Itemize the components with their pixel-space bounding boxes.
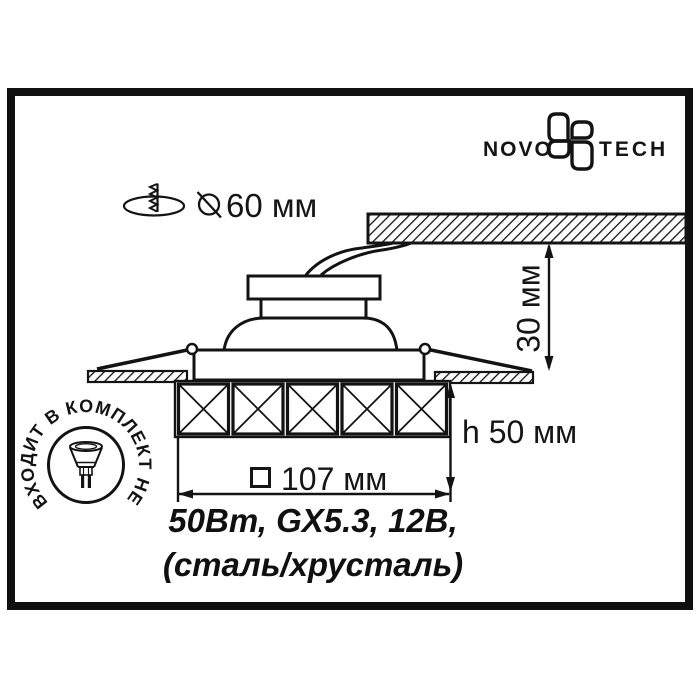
stamp-inner-circle [49,428,124,503]
square-symbol [250,467,271,488]
fixture-top-cap [248,276,380,299]
stamp-circular-text: ВХОДИТ В КОМПЛЕКТ НЕ [17,396,155,513]
fixture-neck [261,299,366,318]
cutout-diameter-label: 60 мм [226,187,317,225]
novotech-flower-icon [549,114,592,169]
screw-left [187,344,197,354]
halogen-lamp-icon [70,442,102,488]
height-label: h 50 мм [462,414,577,451]
not-included-stamp: ВХОДИТ В КОМПЛЕКТ НЕ [17,396,155,513]
ceiling-hatch-left [88,371,187,382]
fixture-body [97,243,532,380]
ceiling-hatch-top [368,214,686,243]
spec-text: 50Вт, GX5.3, 12В, (сталь/хрусталь) [140,499,486,587]
mounting-clip-left [97,349,192,369]
mount-hole-screw-icon [124,184,184,216]
spec-line-2: (сталь/хрусталь) [140,543,486,587]
width-value: 107 мм [281,461,387,497]
width-label: 107 мм [250,461,387,498]
crystal-decor-row [175,381,450,437]
spec-line-1: 50Вт, GX5.3, 12В, [140,499,486,543]
diameter-icon [198,192,222,218]
technical-drawing: ВХОДИТ В КОМПЛЕКТ НЕ [0,0,700,700]
screw-right [420,344,430,354]
diagram-page: NOVO TECH [0,0,700,700]
fixture-dome [224,318,397,351]
trim-ring [194,350,424,380]
recess-depth-label: 30 мм [511,249,548,369]
